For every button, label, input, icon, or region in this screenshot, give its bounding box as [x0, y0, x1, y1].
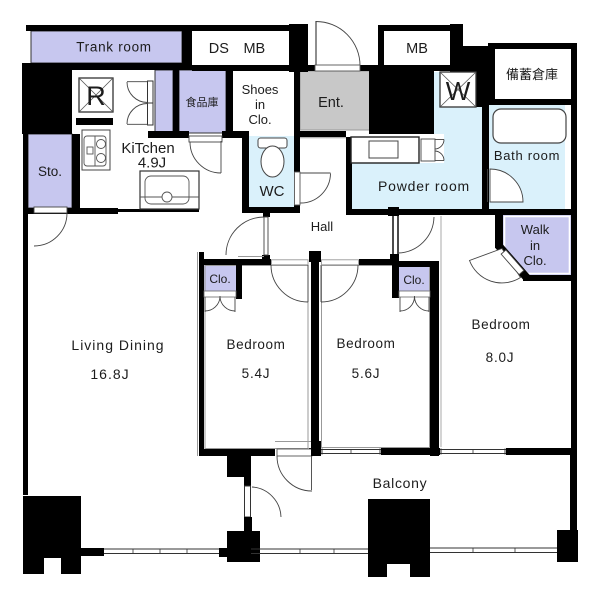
svg-text:4.9J: 4.9J — [138, 155, 166, 172]
svg-text:8.0J: 8.0J — [486, 350, 515, 365]
svg-text:in: in — [530, 238, 540, 253]
svg-text:Bedroom: Bedroom — [472, 317, 531, 332]
svg-text:Clo.: Clo. — [523, 253, 546, 268]
svg-text:W: W — [446, 76, 471, 106]
svg-text:Bedroom: Bedroom — [337, 336, 396, 351]
svg-text:Clo.: Clo. — [248, 112, 271, 127]
svg-text:Balcony: Balcony — [373, 475, 428, 491]
svg-text:in: in — [255, 97, 265, 112]
svg-text:Bath room: Bath room — [494, 148, 560, 163]
svg-text:食品庫: 食品庫 — [186, 95, 219, 109]
svg-text:5.4J: 5.4J — [242, 366, 271, 381]
svg-text:Shoes: Shoes — [242, 82, 279, 97]
svg-text:Ent.: Ent. — [318, 95, 344, 111]
svg-text:WC: WC — [260, 183, 285, 200]
svg-text:5.6J: 5.6J — [352, 366, 381, 381]
svg-text:Trank room: Trank room — [76, 40, 152, 55]
svg-text:Clo.: Clo. — [209, 272, 230, 286]
svg-text:Sto.: Sto. — [38, 164, 62, 179]
svg-text:16.8J: 16.8J — [90, 366, 129, 382]
svg-text:Powder room: Powder room — [378, 178, 470, 194]
svg-text:備蓄倉庫: 備蓄倉庫 — [506, 67, 558, 82]
svg-text:Clo.: Clo. — [403, 273, 424, 287]
svg-text:MB: MB — [406, 41, 428, 57]
svg-text:Living Dining: Living Dining — [71, 337, 164, 353]
svg-text:Bedroom: Bedroom — [227, 337, 286, 352]
svg-text:R: R — [86, 81, 106, 111]
svg-text:Walk: Walk — [521, 222, 550, 237]
svg-text:Hall: Hall — [311, 219, 334, 234]
svg-text:DS MB: DS MB — [209, 41, 265, 57]
